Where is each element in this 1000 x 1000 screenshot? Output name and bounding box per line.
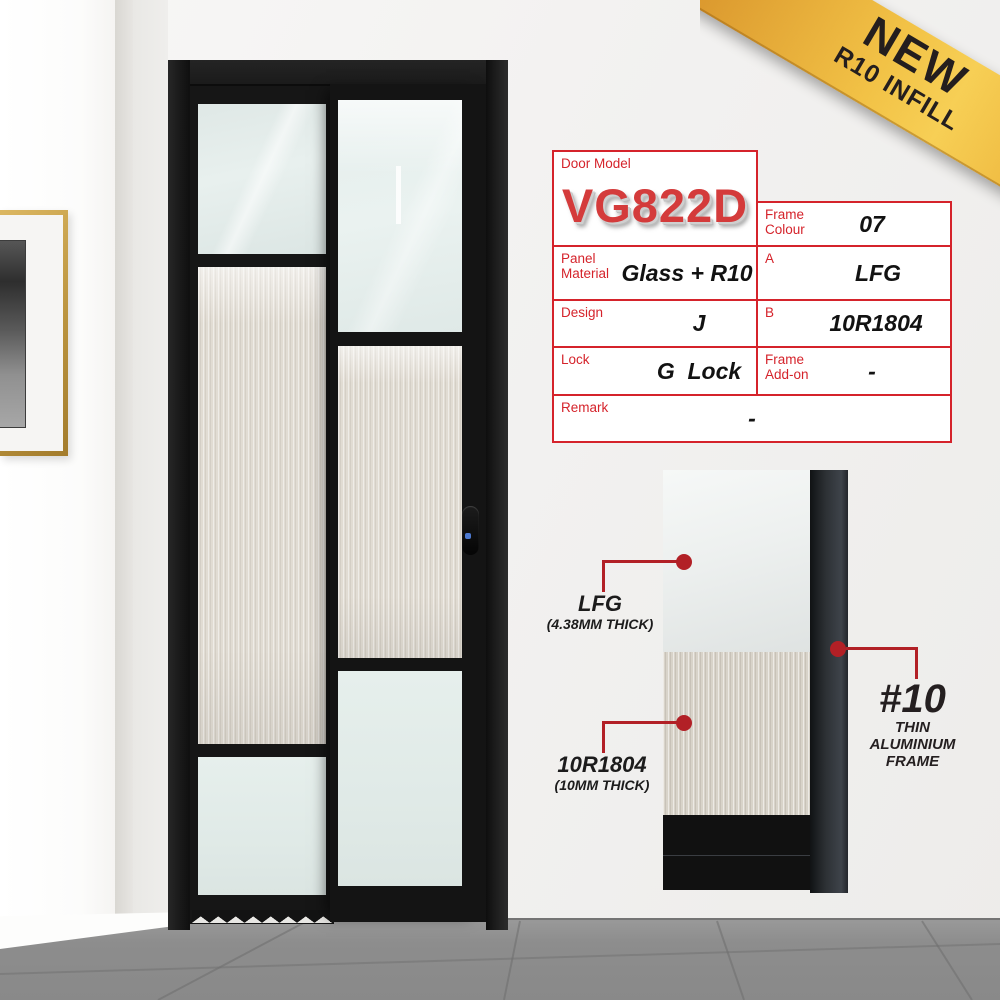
door-model-label: Door Model — [561, 156, 631, 171]
panel-material-label: Panel Material — [561, 251, 617, 281]
wall-floor-junction — [508, 918, 1000, 920]
callout-frame-line-h — [846, 647, 918, 650]
callout-frame-line-v — [915, 647, 918, 679]
callout-infill-subtitle: (10MM THICK) — [512, 777, 692, 793]
spec-cell-panel-material: Panel Material Glass + R10 — [552, 245, 758, 301]
glass-panel-bottom-left — [198, 757, 326, 895]
door-leaf-left — [190, 86, 334, 924]
spec-cell-lock: Lock G Lock — [552, 346, 758, 396]
callout-infill-title: 10R1804 — [512, 753, 692, 777]
b-value: 10R1804 — [758, 301, 950, 346]
wall-shade-strip — [133, 0, 168, 932]
glass-panel-bottom-right — [338, 671, 462, 886]
callout-frame-label: #10 THIN ALUMINIUM FRAME — [840, 679, 985, 770]
door-leaf-right — [330, 84, 486, 922]
callout-frame-line3: FRAME — [840, 753, 985, 770]
infill-panel-left — [198, 267, 326, 744]
callout-frame-title: #10 — [840, 679, 985, 719]
spec-cell-design: Design J — [552, 299, 758, 348]
spec-cell-frame-addon: Frame Add-on - — [756, 346, 952, 396]
glass-panel-top-right — [338, 100, 462, 332]
door-frame-left-jamb — [168, 60, 190, 930]
remark-value: - — [554, 396, 950, 441]
callout-frame-line2: ALUMINIUM — [840, 736, 985, 753]
door-frame-right-jamb — [486, 60, 508, 930]
door-frame-header — [168, 60, 508, 86]
spec-cell-a: A LFG — [756, 245, 952, 301]
callout-glass-subtitle: (4.38MM THICK) — [520, 616, 680, 632]
callout-frame-line1: THIN — [840, 719, 985, 736]
detail-sample — [663, 470, 848, 893]
lock-label: Lock — [561, 352, 590, 367]
a-label: A — [765, 251, 774, 266]
callout-glass-line-h — [602, 560, 680, 563]
spec-cell-door-model: Door Model VG822D — [552, 150, 758, 247]
callout-infill-line-v — [602, 721, 605, 753]
callout-infill-label: 10R1804 (10MM THICK) — [512, 753, 692, 793]
glass-panel-top-left — [198, 104, 326, 254]
callout-frame-dot — [830, 641, 846, 657]
scene: NEW R10 INFILL Door Model VG822D Frame C… — [0, 0, 1000, 1000]
leaf-bottom-zigzag — [192, 910, 332, 923]
spec-cell-frame-colour: Frame Colour 07 — [756, 201, 952, 247]
callout-glass-title: LFG — [520, 592, 680, 616]
floor-grout-lines — [0, 918, 1000, 1000]
door-lock — [462, 506, 479, 555]
left-wall — [0, 0, 115, 945]
callout-glass-line-v — [602, 560, 605, 592]
sample-bottom-frame — [663, 815, 810, 890]
picture-art — [0, 240, 26, 428]
spec-cell-remark: Remark - — [552, 394, 952, 443]
wall-corner-edge — [115, 0, 133, 940]
design-label: Design — [561, 305, 603, 320]
a-value: LFG — [758, 247, 950, 299]
frame-colour-label: Frame Colour — [765, 207, 821, 237]
frame-addon-label: Frame Add-on — [765, 352, 821, 382]
sample-frame-seam — [663, 855, 810, 856]
lock-indicator — [465, 533, 471, 539]
picture-frame — [0, 210, 68, 456]
b-label: B — [765, 305, 774, 320]
spec-cell-b: B 10R1804 — [756, 299, 952, 348]
callout-infill-line-h — [602, 721, 680, 724]
callout-glass-label: LFG (4.38MM THICK) — [520, 592, 680, 632]
remark-label: Remark — [561, 400, 608, 415]
infill-panel-right — [338, 346, 462, 658]
